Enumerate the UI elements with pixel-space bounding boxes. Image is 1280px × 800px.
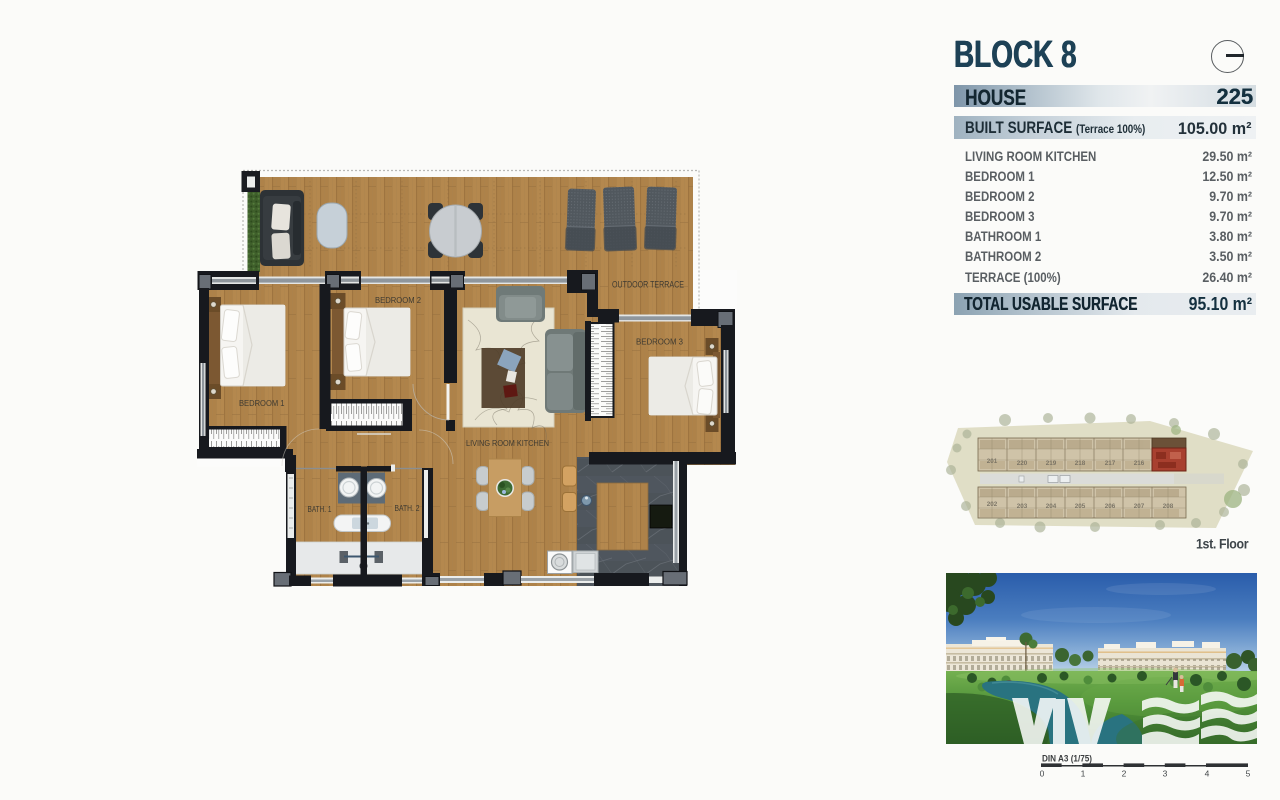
svg-text:220: 220 — [1017, 460, 1028, 467]
svg-text:1st. Floor: 1st. Floor — [1196, 536, 1249, 552]
svg-text:202: 202 — [987, 501, 998, 508]
svg-text:5: 5 — [1246, 769, 1251, 779]
svg-text:217: 217 — [1105, 460, 1116, 467]
svg-text:OUTDOOR TERRACE: OUTDOOR TERRACE — [612, 280, 684, 290]
svg-text:BEDROOM 1: BEDROOM 1 — [239, 399, 285, 408]
svg-text:LIVING ROOM KITCHEN: LIVING ROOM KITCHEN — [466, 438, 549, 448]
svg-text:0: 0 — [1040, 769, 1045, 779]
svg-text:218: 218 — [1075, 460, 1086, 467]
svg-text:2: 2 — [1122, 769, 1127, 779]
svg-text:BATH. 2: BATH. 2 — [395, 504, 420, 513]
svg-text:207: 207 — [1134, 503, 1145, 510]
svg-text:219: 219 — [1046, 460, 1057, 467]
svg-text:203: 203 — [1017, 503, 1028, 510]
svg-text:BEDROOM 2: BEDROOM 2 — [375, 296, 422, 305]
svg-text:4: 4 — [1205, 769, 1210, 779]
svg-text:208: 208 — [1163, 503, 1174, 510]
svg-text:DIN A3 (1/75): DIN A3 (1/75) — [1042, 753, 1092, 764]
svg-text:3: 3 — [1163, 769, 1168, 779]
svg-text:BEDROOM 3: BEDROOM 3 — [636, 338, 684, 347]
svg-text:201: 201 — [987, 458, 998, 465]
svg-text:BATH. 1: BATH. 1 — [308, 505, 332, 514]
svg-text:205: 205 — [1075, 503, 1086, 510]
svg-text:204: 204 — [1046, 503, 1057, 510]
svg-text:216: 216 — [1134, 460, 1145, 467]
svg-text:1: 1 — [1081, 769, 1086, 779]
svg-text:206: 206 — [1105, 503, 1116, 510]
